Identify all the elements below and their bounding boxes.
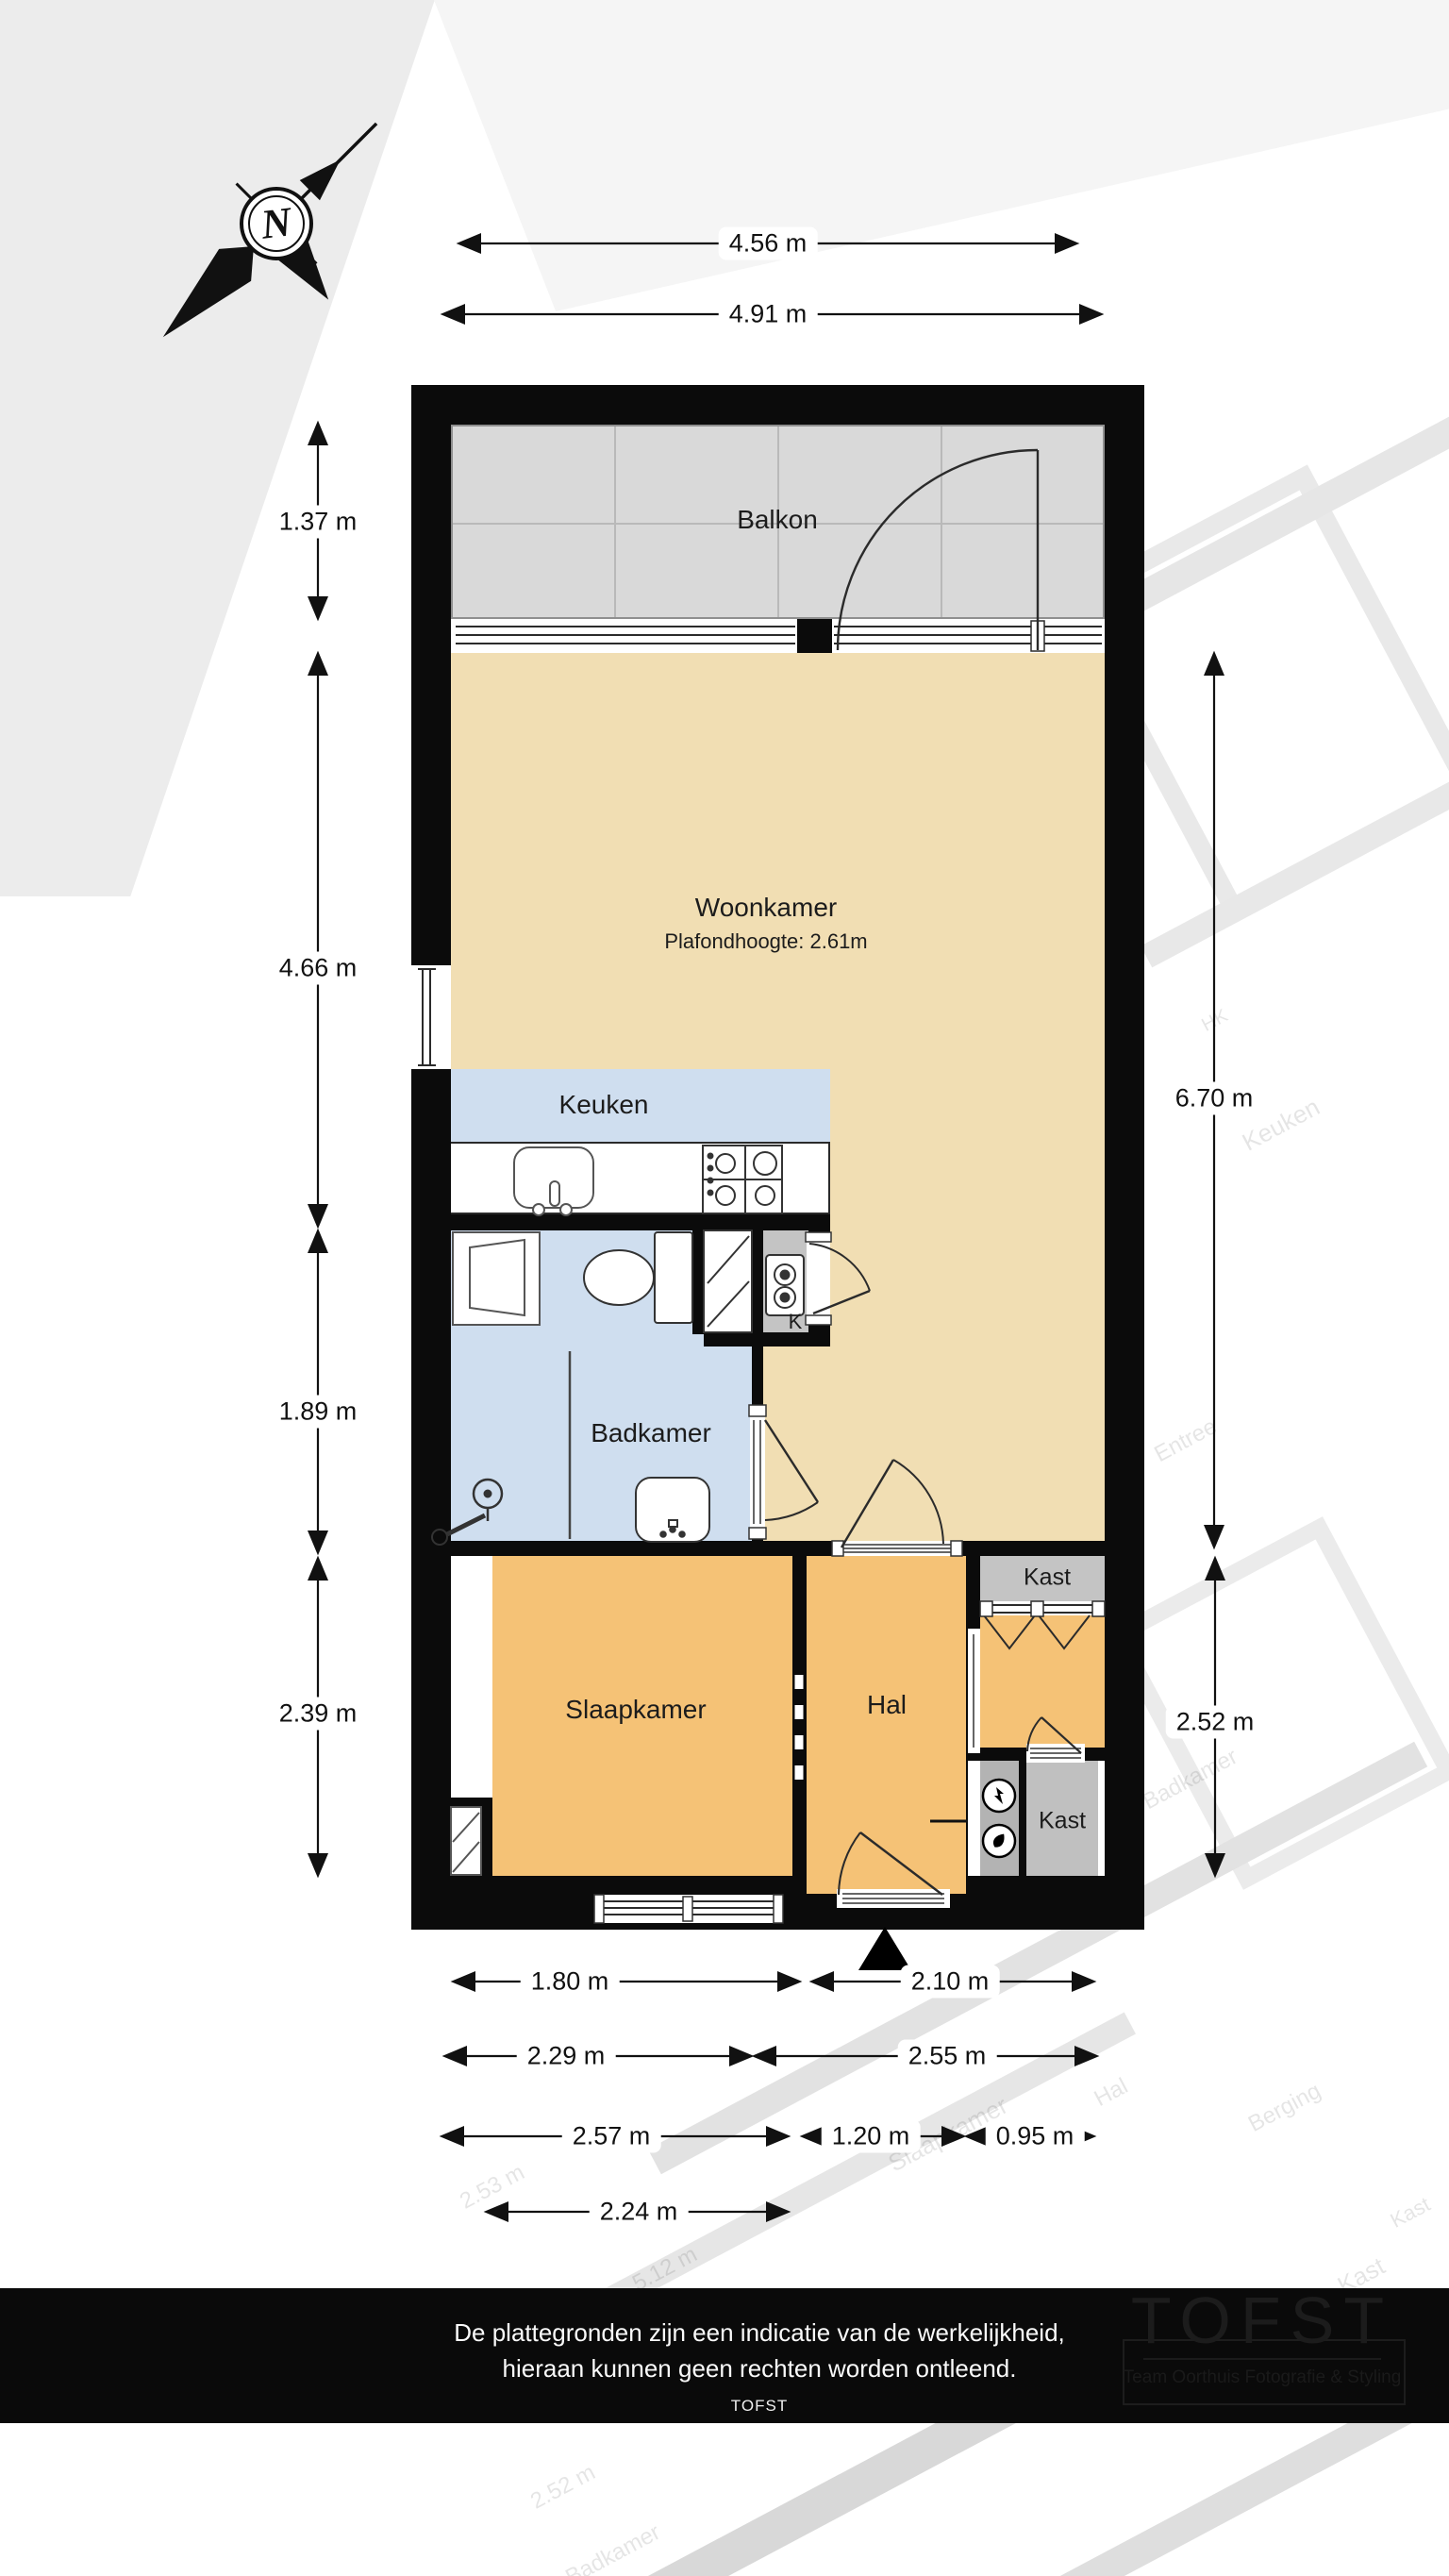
room-label-kast-top: Kast: [1024, 1564, 1071, 1592]
shower-head-icon: [432, 1480, 502, 1545]
slaapkamer-shaft-icon: [451, 1807, 481, 1875]
plan-linework: N: [0, 0, 1449, 2576]
room-label-slaapkamer: Slaapkamer: [565, 1695, 706, 1725]
dimension-label: 1.37 m: [269, 506, 368, 539]
washbasin-icon: [636, 1478, 709, 1542]
room-label-woonkamer-ceiling: Plafondhoogte: 2.61m: [664, 929, 867, 954]
dimension-label: 2.24 m: [590, 2196, 689, 2229]
badkamer-door-swing: [749, 1405, 818, 1539]
shaft-icon: [704, 1230, 752, 1332]
kitchen-sink-icon: [514, 1147, 593, 1215]
dimension-label: 2.10 m: [901, 1965, 1000, 1999]
meterkast: [930, 1761, 1015, 1876]
dimension-label: 1.89 m: [269, 1396, 368, 1429]
dimension-label: 2.29 m: [517, 2040, 616, 2073]
dimension-label: 2.39 m: [269, 1698, 368, 1731]
disclaimer-footer: De plattegronden zijn een indicatie van …: [0, 2288, 1449, 2423]
room-label-balkon: Balkon: [737, 505, 818, 535]
room-label-keuken: Keuken: [559, 1090, 649, 1120]
balcony-door-swing: [838, 450, 1038, 650]
slaapkamer-window: [594, 1895, 783, 1923]
tofst-logo-title: TOFST: [1131, 2283, 1393, 2358]
room-label-woonkamer: Woonkamer: [695, 893, 837, 923]
dimension-label: 4.66 m: [269, 952, 368, 985]
entrance-arrow-icon: [858, 1927, 911, 1970]
stove-icon: [703, 1146, 782, 1213]
water-meter-icon: [983, 1825, 1015, 1857]
electric-meter-icon: [983, 1780, 1015, 1812]
dimension-label: 1.20 m: [822, 2120, 921, 2153]
room-label-k-closet: K: [789, 1310, 803, 1334]
balcony-window: [456, 621, 1102, 651]
room-label-hal: Hal: [867, 1690, 907, 1720]
shower-cabin-icon: [453, 1232, 540, 1325]
dimension-label: 4.91 m: [719, 298, 818, 331]
hal-side-door: [968, 1629, 980, 1753]
compass-icon: N: [123, 84, 441, 402]
boiler-icon: [766, 1255, 804, 1315]
kast-bottom-door-swing: [1026, 1717, 1085, 1763]
room-label-kast-bottom: Kast: [1039, 1808, 1086, 1835]
dimension-label: 2.57 m: [562, 2120, 661, 2153]
k-closet-door-swing: [806, 1232, 870, 1325]
entry-door-swing: [837, 1832, 950, 1908]
tofst-logo-subtitle: Team Oorthuis Fotografie & Styling: [1124, 2367, 1402, 2388]
disclaimer-text: De plattegronden zijn een indicatie van …: [454, 2315, 1065, 2424]
hal-door-swing: [832, 1460, 962, 1556]
disclaimer-line1: De plattegronden zijn een indicatie van …: [454, 2318, 1065, 2347]
floorplan-page: Keuken HK HK Entree Badkamer Slaapkamer …: [0, 0, 1449, 2576]
tofst-logo-rule: [1143, 2358, 1381, 2360]
woonkamer-side-window: [411, 965, 451, 1069]
toilet-icon: [584, 1232, 692, 1323]
dimension-label: 0.95 m: [986, 2120, 1085, 2153]
dimension-label: 2.55 m: [898, 2040, 997, 2073]
tofst-logo: TOFST Team Oorthuis Fotografie & Styling: [1123, 2296, 1406, 2409]
disclaimer-line2: hieraan kunnen geen rechten worden ontle…: [503, 2354, 1017, 2383]
dimension-label: 6.70 m: [1165, 1082, 1264, 1115]
dimension-label: 2.52 m: [1166, 1706, 1265, 1739]
dimension-label: 4.56 m: [719, 227, 818, 260]
kast-bifold-doors: [980, 1601, 1105, 1648]
disclaimer-line3: TOFST: [454, 2388, 1065, 2424]
dimension-label: 1.80 m: [521, 1965, 620, 1999]
room-label-badkamer: Badkamer: [591, 1418, 711, 1448]
